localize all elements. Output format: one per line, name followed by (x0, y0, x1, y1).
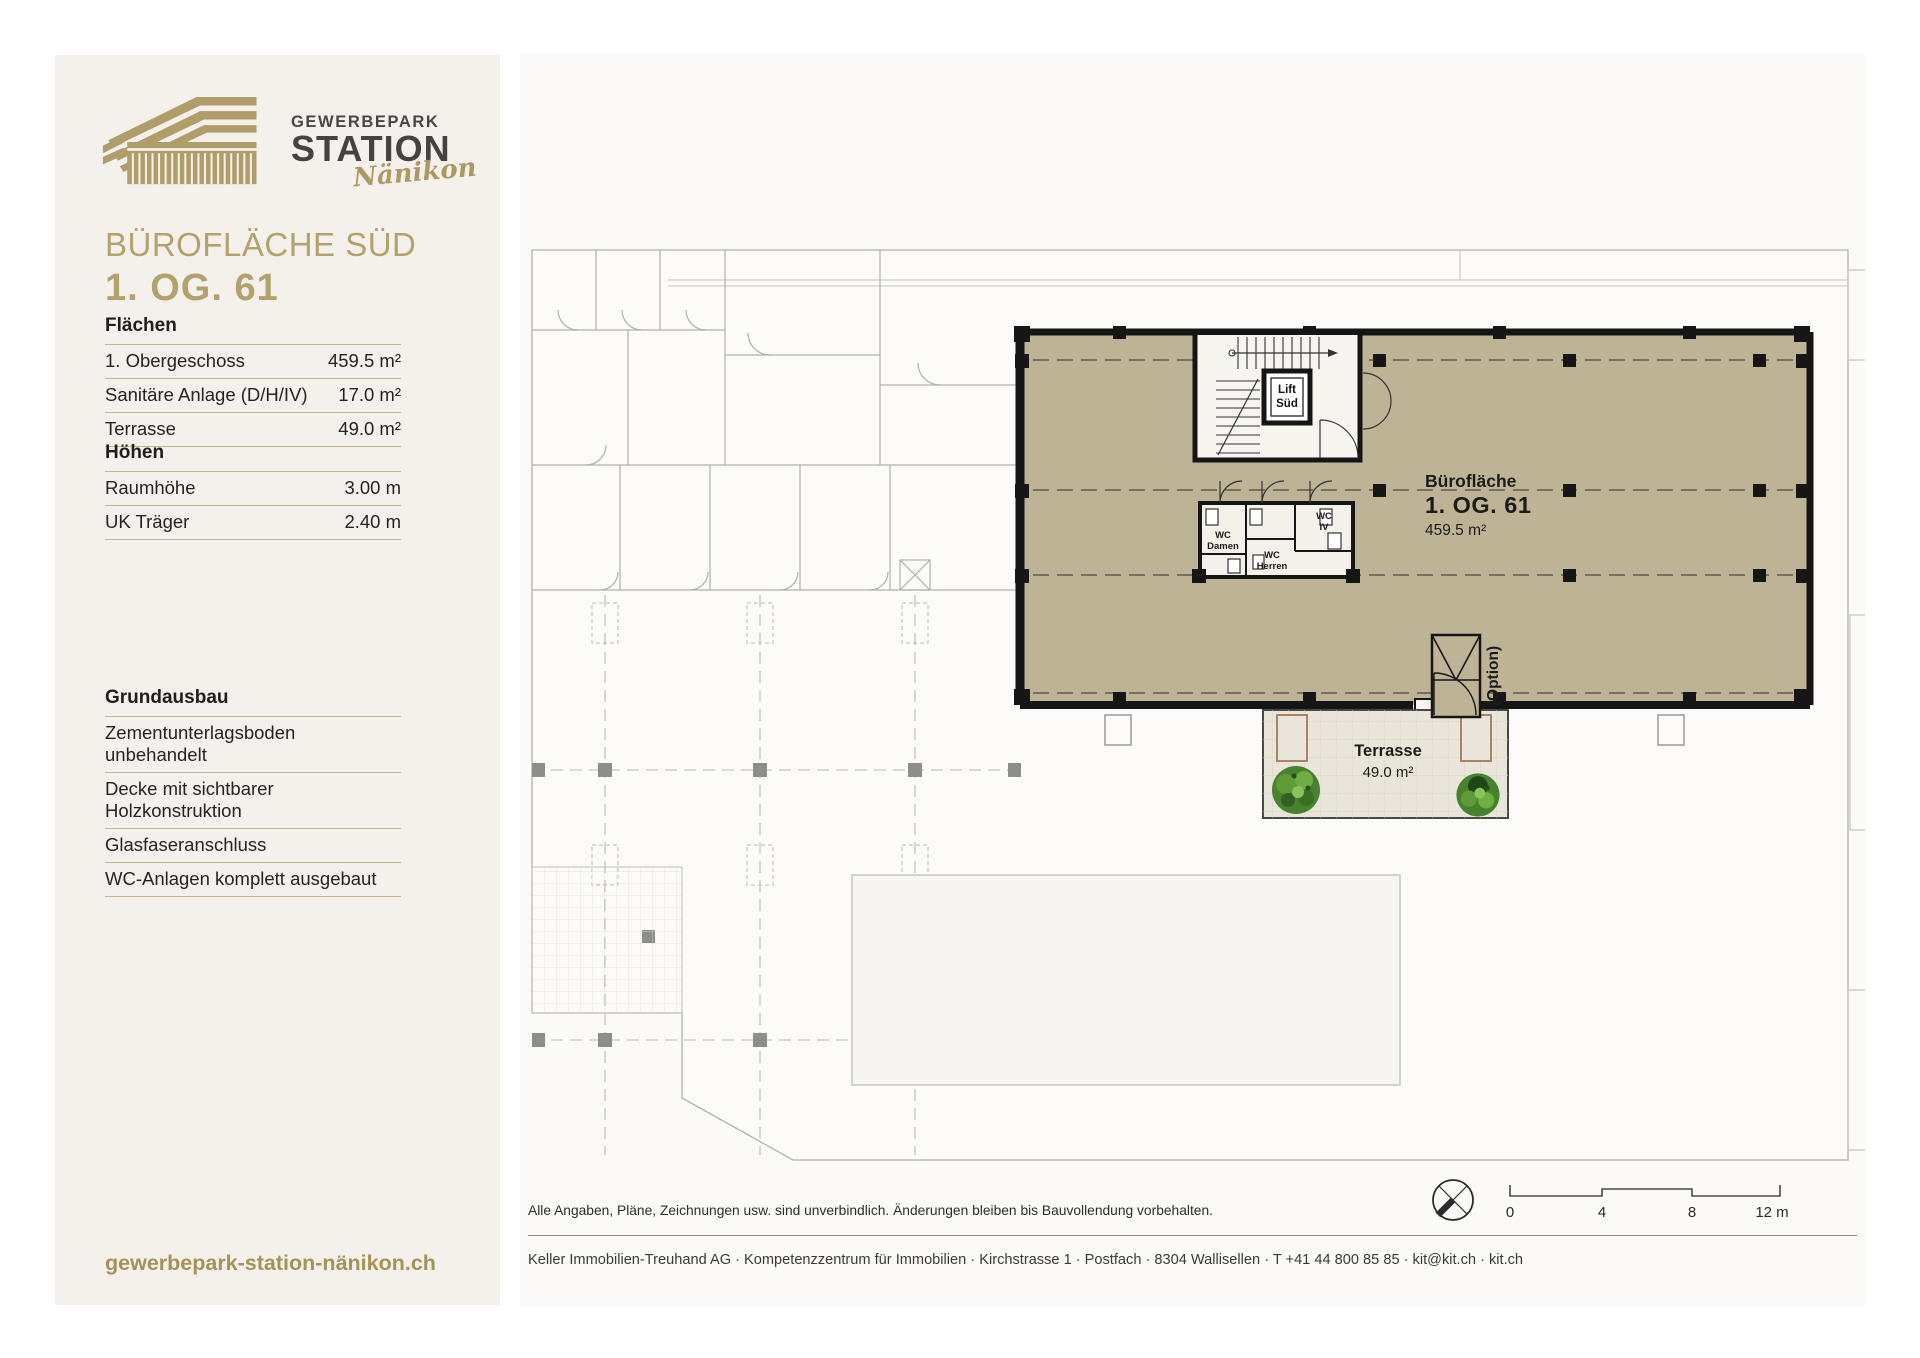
row-label: Terrasse (105, 418, 176, 440)
section-heading: Flächen (105, 315, 401, 345)
plan-panel: Lift Süd WC Damen WC Herren WC IV Bürofl… (520, 55, 1865, 1305)
row-value: 49.0 m² (338, 418, 401, 440)
wc-herren-line1: WC (1264, 550, 1280, 561)
logo-building-icon (101, 83, 279, 201)
disclaimer-text: Alle Angaben, Pläne, Zeichnungen usw. si… (528, 1203, 1213, 1218)
page-title-sub: 1. OG. 61 (105, 265, 416, 311)
page-title: BÜROFLÄCHE SÜD 1. OG. 61 (105, 225, 416, 311)
item-label: Decke mit sichtbarer Holzkonstruktion (105, 778, 401, 822)
terrace-label-line1: Terrasse (1354, 742, 1422, 760)
terrace: Terrasse 49.0 m² (1263, 710, 1508, 818)
terrace-label-line2: 49.0 m² (1363, 764, 1414, 781)
table-row: Sanitäre Anlage (D/H/IV) 17.0 m² (105, 379, 401, 413)
option-label: (Option) (1485, 646, 1502, 706)
scale-bar: 0 4 8 12 m (1506, 1185, 1789, 1221)
wc-iv-line2: IV (1320, 522, 1330, 533)
item-label: Zementunterlagsboden unbehandelt (105, 722, 401, 766)
stair-lift-core: Lift Süd (1195, 332, 1391, 460)
wc-herren-line2: Herren (1257, 561, 1288, 572)
table-row: Raumhöhe 3.00 m (105, 472, 401, 506)
row-label: Sanitäre Anlage (D/H/IV) (105, 384, 308, 406)
list-item: Glasfaseranschluss (105, 829, 401, 863)
lift-label-line2: Süd (1276, 398, 1298, 410)
brand-logo: GEWERBEPARK STATION Nänikon (101, 83, 477, 201)
section-heading: Grundausbau (105, 687, 401, 717)
compass-icon (1433, 1180, 1473, 1220)
area-label-line1: Bürofläche (1425, 471, 1517, 491)
table-row: 1. Obergeschoss 459.5 m² (105, 345, 401, 379)
option-stair: (Option) (1432, 635, 1502, 717)
list-item: Decke mit sichtbarer Holzkonstruktion (105, 773, 401, 829)
lift-label-line1: Lift (1278, 384, 1296, 396)
list-item: WC-Anlagen komplett ausgebaut (105, 863, 401, 897)
scale-tick-8: 8 (1688, 1204, 1696, 1221)
page-title-main: BÜROFLÄCHE SÜD (105, 225, 416, 265)
row-label: Raumhöhe (105, 477, 196, 499)
tree-icon (1272, 766, 1320, 814)
section-flaechen: Flächen 1. Obergeschoss 459.5 m² Sanitär… (105, 315, 401, 447)
floor-plan: Lift Süd WC Damen WC Herren WC IV Bürofl… (520, 55, 1865, 1305)
wc-damen-line2: Damen (1207, 541, 1239, 552)
row-value: 17.0 m² (338, 384, 401, 406)
scale-tick-12: 12 m (1755, 1204, 1788, 1221)
list-item: Zementunterlagsboden unbehandelt (105, 717, 401, 773)
scale-tick-4: 4 (1598, 1204, 1606, 1221)
footer-divider (528, 1235, 1857, 1236)
info-panel: GEWERBEPARK STATION Nänikon BÜROFLÄCHE S… (55, 55, 500, 1305)
section-grundausbau: Grundausbau Zementunterlagsboden unbehan… (105, 687, 401, 897)
item-label: Glasfaseranschluss (105, 834, 266, 856)
office-area-highlight (1014, 326, 1810, 715)
section-heading: Höhen (105, 442, 401, 472)
wc-damen-line1: WC (1215, 530, 1231, 541)
row-label: UK Träger (105, 511, 189, 533)
scale-tick-0: 0 (1506, 1204, 1514, 1221)
row-value: 3.00 m (344, 477, 401, 499)
area-label-line2: 1. OG. 61 (1425, 492, 1531, 518)
section-hoehen: Höhen Raumhöhe 3.00 m UK Träger 2.40 m (105, 442, 401, 540)
tree-icon (1456, 773, 1499, 816)
table-row: UK Träger 2.40 m (105, 506, 401, 540)
website-link[interactable]: gewerbepark-station-nänikon.ch (105, 1251, 436, 1276)
contact-line: Keller Immobilien-Treuhand AG · Kompeten… (528, 1252, 1523, 1268)
logo-text: GEWERBEPARK STATION Nänikon (291, 83, 477, 201)
area-label-line3: 459.5 m² (1425, 522, 1486, 539)
item-label: WC-Anlagen komplett ausgebaut (105, 868, 376, 890)
row-value: 2.40 m (344, 511, 401, 533)
row-value: 459.5 m² (328, 350, 401, 372)
row-label: 1. Obergeschoss (105, 350, 245, 372)
wc-iv-line1: WC (1316, 511, 1332, 522)
